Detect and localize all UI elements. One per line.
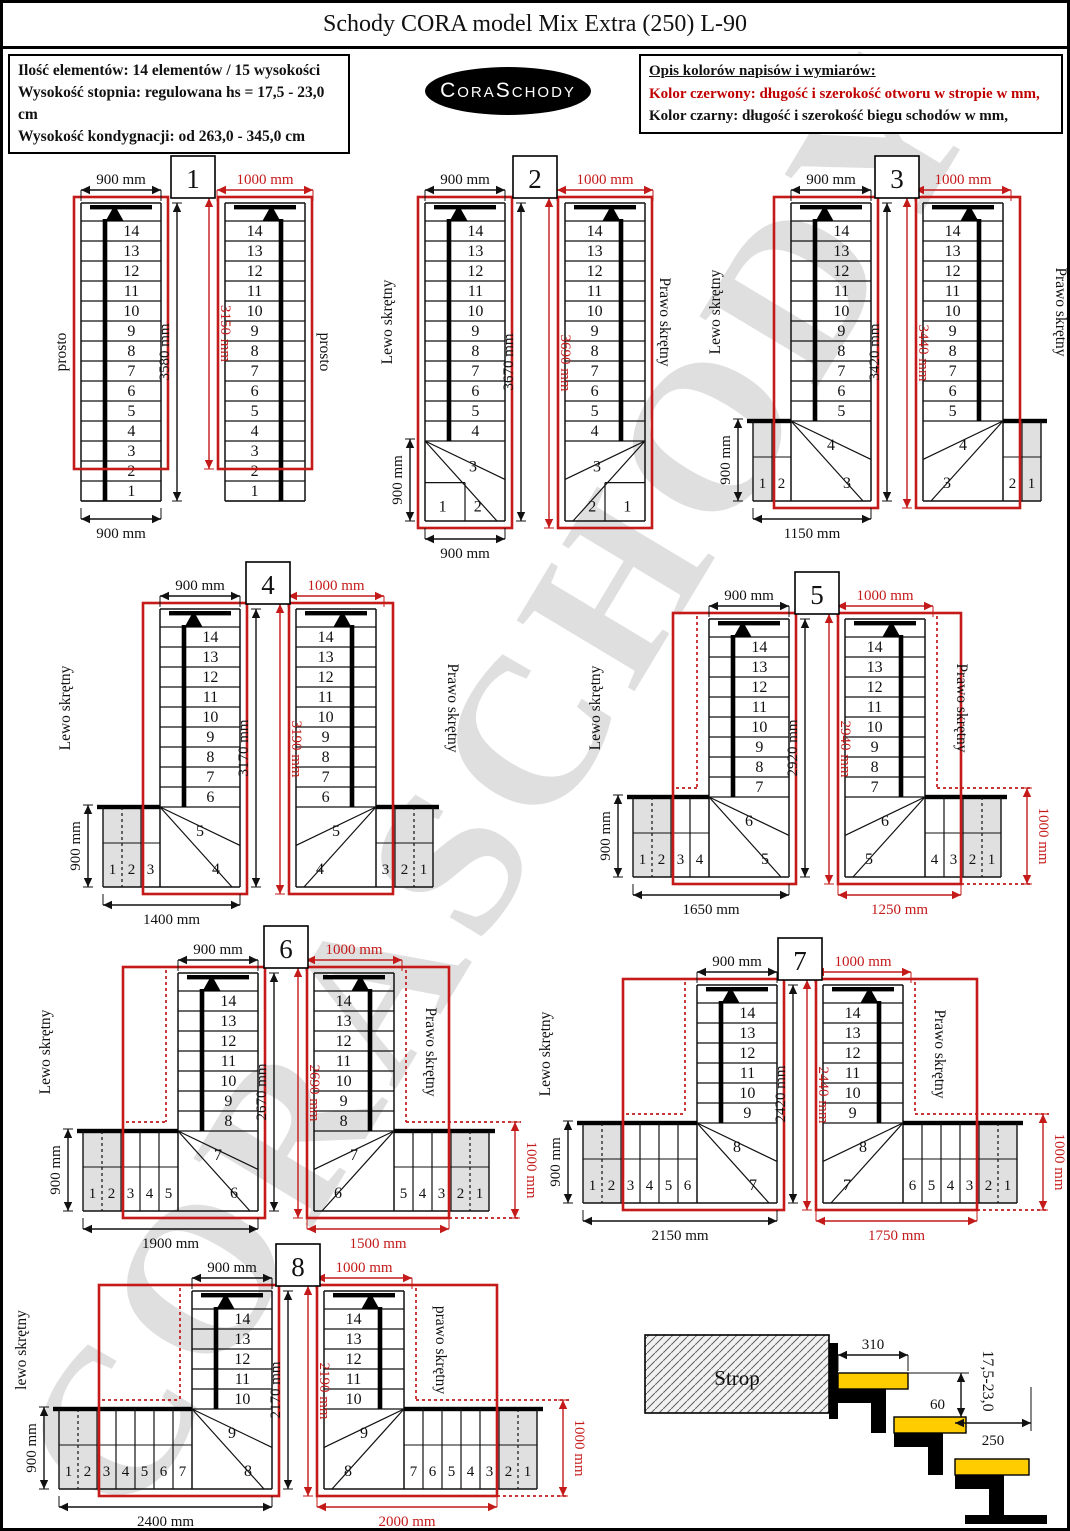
dim-60: 60 — [908, 1373, 969, 1417]
svg-text:lewo skrętny: lewo skrętny — [13, 1310, 30, 1390]
svg-text:7: 7 — [322, 769, 330, 786]
svg-text:6: 6 — [279, 934, 293, 964]
svg-text:4: 4 — [471, 423, 479, 440]
svg-text:1000 mm: 1000 mm — [856, 588, 913, 604]
svg-text:5: 5 — [591, 403, 599, 420]
stair-diagram-8: 1413121110981234567141312111098123456710… — [15, 1241, 589, 1531]
svg-text:6: 6 — [334, 1185, 342, 1202]
svg-text:1: 1 — [759, 476, 767, 492]
svg-text:13: 13 — [833, 243, 849, 260]
svg-text:7: 7 — [179, 1464, 187, 1480]
svg-text:3: 3 — [843, 475, 851, 492]
svg-text:prawo skrętny: prawo skrętny — [432, 1306, 449, 1394]
svg-text:13: 13 — [346, 1331, 362, 1348]
svg-text:3: 3 — [127, 443, 135, 460]
dim-side-black: 900 mm — [48, 1129, 73, 1211]
svg-text:11: 11 — [318, 689, 333, 706]
svg-text:6: 6 — [949, 383, 957, 400]
figure-left: 1413121110987651234 — [627, 619, 789, 877]
svg-text:2: 2 — [588, 498, 596, 515]
dim-side-black: 900 mm — [24, 1407, 49, 1489]
svg-text:14: 14 — [467, 223, 483, 240]
dim-side-black: 900 mm — [718, 419, 743, 501]
svg-text:900 mm: 900 mm — [24, 1423, 40, 1473]
svg-text:1: 1 — [524, 1464, 532, 1480]
strop-slab: Strop — [645, 1335, 838, 1419]
svg-text:1650 mm: 1650 mm — [682, 902, 739, 918]
svg-text:6: 6 — [837, 383, 845, 400]
svg-text:8: 8 — [291, 1252, 305, 1282]
diagram-number-box: 3 — [875, 156, 919, 198]
svg-text:8: 8 — [859, 1139, 867, 1156]
svg-text:1000 mm: 1000 mm — [236, 172, 293, 188]
opening-outline-left — [123, 967, 265, 1218]
svg-text:900 mm: 900 mm — [598, 811, 614, 861]
svg-text:7: 7 — [793, 946, 807, 976]
svg-text:1: 1 — [476, 1186, 484, 1202]
svg-text:10: 10 — [739, 1085, 755, 1102]
brand-logo: CoraSchody — [425, 67, 591, 115]
svg-text:6: 6 — [206, 789, 214, 806]
svg-text:8: 8 — [251, 343, 259, 360]
svg-text:14: 14 — [945, 223, 961, 240]
svg-text:10: 10 — [336, 1073, 352, 1090]
svg-text:1250 mm: 1250 mm — [871, 902, 928, 918]
svg-text:8: 8 — [755, 759, 763, 776]
svg-text:7: 7 — [871, 779, 879, 796]
svg-text:3: 3 — [950, 852, 958, 868]
svg-text:2: 2 — [1009, 476, 1017, 492]
svg-text:10: 10 — [234, 1391, 250, 1408]
svg-text:7: 7 — [755, 779, 763, 796]
svg-text:13: 13 — [220, 1013, 236, 1030]
svg-text:12: 12 — [247, 263, 263, 280]
svg-text:prosto: prosto — [53, 332, 70, 371]
svg-text:3: 3 — [677, 852, 685, 868]
svg-text:8: 8 — [340, 1113, 348, 1130]
dim-bottom-black: 900 mm — [425, 528, 505, 562]
svg-text:3190 mm: 3190 mm — [288, 720, 304, 777]
svg-text:13: 13 — [467, 243, 483, 260]
svg-text:1000 mm: 1000 mm — [1051, 1133, 1067, 1190]
figure-left: 1413121110987123456 — [577, 985, 777, 1203]
svg-text:13: 13 — [867, 659, 883, 676]
svg-text:7: 7 — [471, 363, 479, 380]
svg-text:Lewo skrętny: Lewo skrętny — [37, 1009, 54, 1094]
svg-text:900 mm: 900 mm — [96, 172, 146, 188]
svg-text:5: 5 — [761, 851, 769, 868]
svg-text:900 mm: 900 mm — [440, 172, 490, 188]
svg-text:3: 3 — [486, 1464, 494, 1480]
svg-text:9: 9 — [228, 1425, 236, 1442]
svg-text:1: 1 — [639, 852, 647, 868]
svg-text:1: 1 — [439, 498, 447, 515]
svg-text:Prawo skrętny: Prawo skrętny — [953, 663, 970, 752]
svg-text:2: 2 — [457, 1186, 465, 1202]
svg-text:9: 9 — [743, 1105, 751, 1122]
svg-text:13: 13 — [202, 649, 218, 666]
diagram-number-box: 8 — [276, 1244, 320, 1286]
svg-text:13: 13 — [845, 1025, 861, 1042]
svg-text:12: 12 — [587, 263, 603, 280]
svg-text:Prawo skrętny: Prawo skrętny — [422, 1007, 439, 1096]
svg-text:5: 5 — [949, 403, 957, 420]
svg-text:12: 12 — [220, 1033, 236, 1050]
svg-text:10: 10 — [220, 1073, 236, 1090]
svg-text:900 mm: 900 mm — [390, 455, 406, 505]
svg-text:8: 8 — [206, 749, 214, 766]
svg-text:5: 5 — [127, 403, 135, 420]
svg-text:2170 mm: 2170 mm — [268, 1361, 284, 1418]
svg-text:9: 9 — [837, 323, 845, 340]
svg-text:14: 14 — [247, 223, 263, 240]
opening-outline-left — [774, 197, 878, 508]
svg-text:9: 9 — [591, 323, 599, 340]
svg-text:3: 3 — [627, 1178, 635, 1194]
svg-text:11: 11 — [247, 283, 262, 300]
svg-text:9: 9 — [340, 1093, 348, 1110]
svg-text:4: 4 — [419, 1186, 427, 1202]
svg-text:11: 11 — [845, 1065, 860, 1082]
diagram-number-box: 1 — [171, 156, 215, 198]
svg-text:3: 3 — [438, 1186, 446, 1202]
svg-text:7: 7 — [127, 363, 135, 380]
svg-text:12: 12 — [346, 1351, 362, 1368]
svg-text:8: 8 — [871, 759, 879, 776]
figure-right: 1413121110987654321 — [225, 203, 305, 501]
svg-text:2: 2 — [128, 862, 136, 878]
svg-text:2190 mm: 2190 mm — [316, 1362, 332, 1419]
svg-text:6: 6 — [322, 789, 330, 806]
svg-text:1: 1 — [127, 483, 135, 500]
svg-text:1150 mm: 1150 mm — [784, 526, 841, 542]
svg-text:4: 4 — [122, 1464, 130, 1480]
svg-text:6: 6 — [881, 813, 889, 830]
svg-text:5: 5 — [251, 403, 259, 420]
svg-text:2: 2 — [127, 463, 135, 480]
svg-text:14: 14 — [336, 993, 352, 1010]
svg-text:11: 11 — [336, 1053, 351, 1070]
stair-diagram-2: 1413121110987654321141312111098765432190… — [381, 153, 673, 563]
svg-text:5: 5 — [332, 823, 340, 840]
svg-text:1000 mm: 1000 mm — [523, 1141, 539, 1198]
diagrams-canvas: 1413121110987654321141312111098765432190… — [3, 3, 1067, 1528]
svg-text:1000 mm: 1000 mm — [1035, 807, 1051, 864]
svg-text:14: 14 — [234, 1311, 250, 1328]
svg-text:9: 9 — [849, 1105, 857, 1122]
svg-text:13: 13 — [247, 243, 263, 260]
svg-text:5: 5 — [865, 851, 873, 868]
svg-text:10: 10 — [247, 303, 263, 320]
svg-text:11: 11 — [468, 283, 483, 300]
svg-text:900 mm: 900 mm — [175, 578, 225, 594]
svg-text:2: 2 — [401, 862, 409, 878]
svg-text:2: 2 — [474, 498, 482, 515]
svg-text:10: 10 — [845, 1085, 861, 1102]
dim-bottom-black: 2150 mm — [583, 1210, 777, 1244]
svg-text:17,5-23,0: 17,5-23,0 — [979, 1350, 996, 1411]
legend-title: Opis kolorów napisów i wymiarów: — [649, 60, 1053, 83]
info-line-step-height: Wysokość stopnia: regulowana hs = 17,5 -… — [18, 82, 340, 126]
svg-text:8: 8 — [244, 1463, 252, 1480]
svg-text:14: 14 — [123, 223, 139, 240]
svg-text:5: 5 — [448, 1464, 456, 1480]
svg-text:2150 mm: 2150 mm — [651, 1228, 708, 1244]
svg-text:4: 4 — [947, 1178, 955, 1194]
svg-text:2: 2 — [108, 1186, 116, 1202]
info-box: Ilość elementów: 14 elementów / 15 wysok… — [8, 54, 350, 154]
svg-text:2: 2 — [528, 164, 542, 194]
svg-text:12: 12 — [336, 1033, 352, 1050]
svg-text:6: 6 — [160, 1464, 168, 1480]
dim-side-black: 900 mm — [390, 439, 415, 521]
svg-text:8: 8 — [344, 1463, 352, 1480]
svg-text:14: 14 — [318, 629, 334, 646]
svg-text:11: 11 — [235, 1371, 250, 1388]
dim-bottom-red: 2000 mm — [317, 1496, 497, 1530]
svg-text:5: 5 — [928, 1178, 936, 1194]
svg-text:12: 12 — [945, 263, 961, 280]
svg-text:Prawo skrętny: Prawo skrętny — [931, 1009, 948, 1098]
svg-text:2940 mm: 2940 mm — [837, 720, 853, 777]
svg-text:14: 14 — [845, 1005, 861, 1022]
svg-text:14: 14 — [220, 993, 236, 1010]
svg-text:14: 14 — [202, 629, 218, 646]
svg-text:Lewo skrętny: Lewo skrętny — [707, 269, 724, 354]
dim-side-black: 900 mm — [598, 795, 623, 877]
figure-left: 1413121110981234567 — [53, 1291, 272, 1489]
svg-text:Strop: Strop — [714, 1366, 760, 1390]
svg-text:3: 3 — [890, 164, 904, 194]
svg-text:900 mm: 900 mm — [806, 172, 856, 188]
svg-text:11: 11 — [945, 283, 960, 300]
svg-text:8: 8 — [949, 343, 957, 360]
svg-text:1: 1 — [186, 164, 200, 194]
svg-text:12: 12 — [867, 679, 883, 696]
svg-text:2690 mm: 2690 mm — [306, 1064, 322, 1121]
svg-text:6: 6 — [684, 1178, 692, 1194]
svg-text:3: 3 — [593, 458, 601, 475]
svg-text:3580 mm: 3580 mm — [157, 323, 173, 380]
svg-text:7: 7 — [949, 363, 957, 380]
svg-text:1000 mm: 1000 mm — [576, 172, 633, 188]
opening-outline-left — [74, 197, 168, 469]
svg-text:6: 6 — [251, 383, 259, 400]
svg-text:13: 13 — [336, 1013, 352, 1030]
svg-text:5: 5 — [665, 1178, 673, 1194]
svg-text:Lewo skrętny: Lewo skrętny — [587, 665, 604, 750]
svg-text:9: 9 — [251, 323, 259, 340]
diagram-number-box: 4 — [246, 562, 290, 604]
svg-text:2000 mm: 2000 mm — [378, 1514, 435, 1530]
svg-text:11: 11 — [740, 1065, 755, 1082]
svg-text:4: 4 — [591, 423, 599, 440]
svg-text:Prawo skrętny: Prawo skrętny — [656, 277, 673, 366]
svg-text:1000 mm: 1000 mm — [335, 1260, 392, 1276]
svg-text:14: 14 — [587, 223, 603, 240]
figure-right: 1413121110987612345 — [314, 973, 495, 1211]
svg-text:12: 12 — [751, 679, 767, 696]
svg-text:5: 5 — [471, 403, 479, 420]
svg-text:1: 1 — [89, 1186, 97, 1202]
svg-text:7: 7 — [214, 1147, 222, 1164]
svg-text:1: 1 — [251, 483, 259, 500]
svg-text:11: 11 — [867, 699, 882, 716]
svg-text:4: 4 — [316, 861, 324, 878]
svg-text:12: 12 — [467, 263, 483, 280]
svg-text:11: 11 — [587, 283, 602, 300]
svg-text:Prawo skrętny: Prawo skrętny — [1052, 267, 1069, 356]
svg-text:7: 7 — [591, 363, 599, 380]
svg-text:5: 5 — [837, 403, 845, 420]
svg-text:12: 12 — [234, 1351, 250, 1368]
svg-text:2: 2 — [505, 1464, 513, 1480]
svg-text:12: 12 — [845, 1045, 861, 1062]
svg-text:1000 mm: 1000 mm — [307, 578, 364, 594]
svg-text:3150 mm: 3150 mm — [217, 305, 233, 362]
dim-310: 310 — [838, 1337, 908, 1371]
svg-text:900 mm: 900 mm — [548, 1137, 564, 1187]
svg-text:4: 4 — [251, 423, 259, 440]
svg-text:9: 9 — [224, 1093, 232, 1110]
svg-text:10: 10 — [318, 709, 334, 726]
svg-text:2670 mm: 2670 mm — [254, 1063, 270, 1120]
svg-text:3: 3 — [251, 443, 259, 460]
svg-text:8: 8 — [471, 343, 479, 360]
svg-text:9: 9 — [360, 1425, 368, 1442]
svg-text:14: 14 — [833, 223, 849, 240]
svg-text:1: 1 — [109, 862, 117, 878]
svg-text:10: 10 — [751, 719, 767, 736]
dim-bottom-red: 1750 mm — [816, 1210, 977, 1244]
svg-text:3690 mm: 3690 mm — [557, 334, 573, 391]
svg-text:2440 mm: 2440 mm — [815, 1066, 831, 1123]
svg-text:11: 11 — [834, 283, 849, 300]
svg-text:2: 2 — [251, 463, 259, 480]
svg-text:10: 10 — [202, 709, 218, 726]
figure-right: 1413121110987651234 — [845, 619, 1007, 877]
svg-text:900 mm: 900 mm — [193, 942, 243, 958]
svg-text:3: 3 — [147, 862, 155, 878]
svg-text:13: 13 — [945, 243, 961, 260]
dim-side-red: 1000 mm — [1038, 1114, 1067, 1210]
figure-right: 1413121110987654321 — [565, 203, 645, 521]
svg-text:1: 1 — [1028, 476, 1036, 492]
svg-text:900 mm: 900 mm — [712, 954, 762, 970]
svg-text:3440 mm: 3440 mm — [915, 324, 931, 381]
stair-diagram-6: 1413121110987612345141312111098761234510… — [39, 923, 541, 1253]
figure-left: 1413121110987654321 — [425, 203, 505, 521]
page-title-text: Schody CORA model Mix Extra (250) L-90 — [323, 11, 747, 38]
svg-text:13: 13 — [751, 659, 767, 676]
svg-text:2420 mm: 2420 mm — [773, 1065, 789, 1122]
svg-text:10: 10 — [587, 303, 603, 320]
svg-text:3: 3 — [966, 1178, 974, 1194]
svg-text:9: 9 — [755, 739, 763, 756]
svg-text:1: 1 — [589, 1178, 597, 1194]
figure-right: 1413121110987654123 — [296, 609, 439, 887]
stair-diagram-1: 1413121110987654321141312111098765432190… — [55, 153, 333, 543]
legend-red-line: Kolor czerwony: długość i szerokość otwo… — [649, 83, 1053, 106]
svg-text:4: 4 — [931, 852, 939, 868]
svg-text:13: 13 — [587, 243, 603, 260]
svg-text:8: 8 — [224, 1113, 232, 1130]
svg-text:1: 1 — [1004, 1178, 1012, 1194]
info-line-elements: Ilość elementów: 14 elementów / 15 wysok… — [18, 60, 340, 82]
diagram-number-box: 5 — [795, 572, 839, 614]
svg-text:60: 60 — [930, 1397, 945, 1413]
svg-text:11: 11 — [346, 1371, 361, 1388]
svg-text:4: 4 — [212, 861, 220, 878]
svg-text:prosto: prosto — [316, 333, 333, 372]
svg-text:6: 6 — [127, 383, 135, 400]
svg-text:900 mm: 900 mm — [48, 1145, 64, 1195]
svg-text:3670 mm: 3670 mm — [501, 333, 517, 390]
svg-text:1750 mm: 1750 mm — [868, 1228, 925, 1244]
svg-text:7: 7 — [749, 1177, 757, 1194]
svg-text:6: 6 — [745, 813, 753, 830]
diagram-number-box: 7 — [778, 938, 822, 980]
svg-text:7: 7 — [206, 769, 214, 786]
svg-text:900 mm: 900 mm — [207, 1260, 257, 1276]
dim-bottom-black: 900 mm — [81, 508, 161, 542]
svg-text:3: 3 — [943, 475, 951, 492]
svg-text:13: 13 — [318, 649, 334, 666]
svg-text:3: 3 — [382, 862, 390, 878]
legend-box: Opis kolorów napisów i wymiarów: Kolor c… — [639, 54, 1063, 134]
svg-text:8: 8 — [127, 343, 135, 360]
svg-text:900 mm: 900 mm — [68, 821, 84, 871]
svg-text:8: 8 — [591, 343, 599, 360]
svg-text:6: 6 — [471, 383, 479, 400]
figure-left: 1413121110987654312 — [747, 203, 871, 501]
svg-text:900 mm: 900 mm — [718, 435, 734, 485]
diagram-number-box: 6 — [264, 926, 308, 968]
svg-text:10: 10 — [467, 303, 483, 320]
svg-text:7: 7 — [350, 1147, 358, 1164]
figure-right: 1413121110987123456 — [823, 985, 1023, 1203]
figure-left: 1413121110987654321 — [81, 203, 161, 501]
svg-text:13: 13 — [123, 243, 139, 260]
svg-text:8: 8 — [837, 343, 845, 360]
svg-text:11: 11 — [221, 1053, 236, 1070]
svg-text:310: 310 — [862, 1337, 885, 1353]
dim-side-red: 1000 mm — [1022, 788, 1051, 884]
svg-text:5: 5 — [196, 823, 204, 840]
stair-diagram-4: 1413121110987654123141312111098765412390… — [59, 559, 461, 929]
svg-text:1000 mm: 1000 mm — [571, 1419, 587, 1476]
svg-text:1000 mm: 1000 mm — [934, 172, 991, 188]
svg-text:10: 10 — [945, 303, 961, 320]
svg-text:11: 11 — [752, 699, 767, 716]
svg-text:Lewo skrętny: Lewo skrętny — [379, 279, 396, 364]
svg-text:2: 2 — [608, 1178, 616, 1194]
svg-text:11: 11 — [124, 283, 139, 300]
svg-text:11: 11 — [203, 689, 218, 706]
svg-text:4: 4 — [146, 1186, 154, 1202]
diagram-number-box: 2 — [513, 156, 557, 198]
svg-text:2: 2 — [778, 476, 786, 492]
dim-side-red: 1000 mm — [510, 1122, 539, 1218]
dim-bottom-black: 1150 mm — [753, 508, 871, 542]
svg-text:9: 9 — [322, 729, 330, 746]
svg-text:3420 mm: 3420 mm — [867, 323, 883, 380]
page-title: Schody CORA model Mix Extra (250) L-90 — [3, 3, 1067, 49]
svg-text:2: 2 — [985, 1178, 993, 1194]
svg-text:4: 4 — [261, 570, 275, 600]
dim-bottom-black: 1650 mm — [633, 884, 789, 918]
svg-text:9: 9 — [206, 729, 214, 746]
